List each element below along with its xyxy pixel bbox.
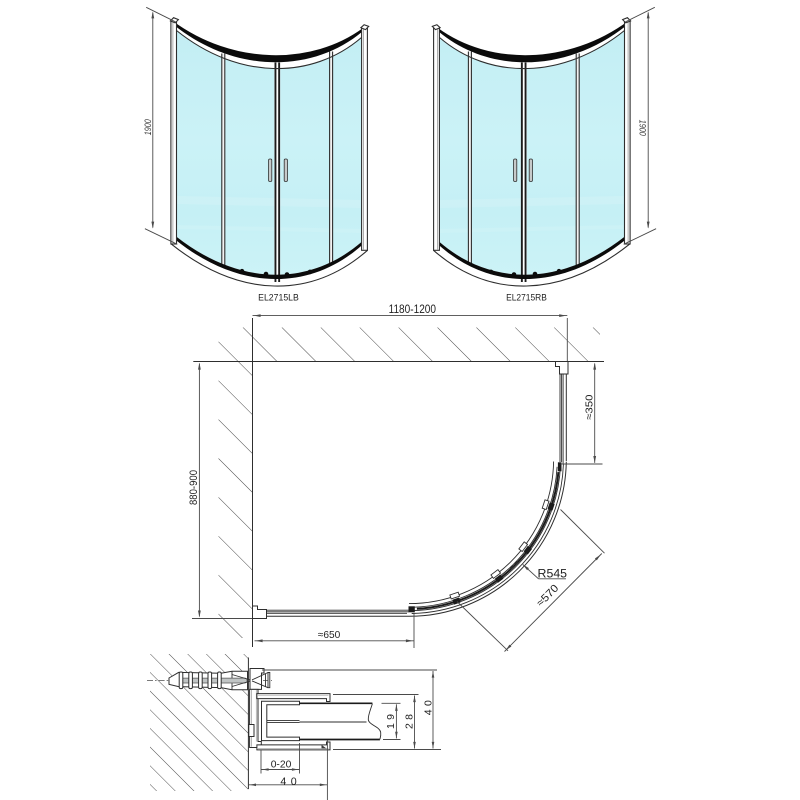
svg-text:EL2715RB: EL2715RB (506, 293, 547, 304)
svg-text:880-900: 880-900 (188, 470, 200, 505)
svg-text:1900: 1900 (637, 120, 648, 136)
svg-text:≈650: ≈650 (318, 629, 341, 641)
svg-text:1180-1200: 1180-1200 (389, 304, 436, 316)
svg-text:≈350: ≈350 (584, 394, 596, 419)
svg-text:R545: R545 (538, 568, 568, 580)
svg-text:EL2715LB: EL2715LB (258, 293, 299, 304)
svg-text:1900: 1900 (143, 119, 154, 135)
svg-text:0-20: 0-20 (271, 760, 292, 771)
